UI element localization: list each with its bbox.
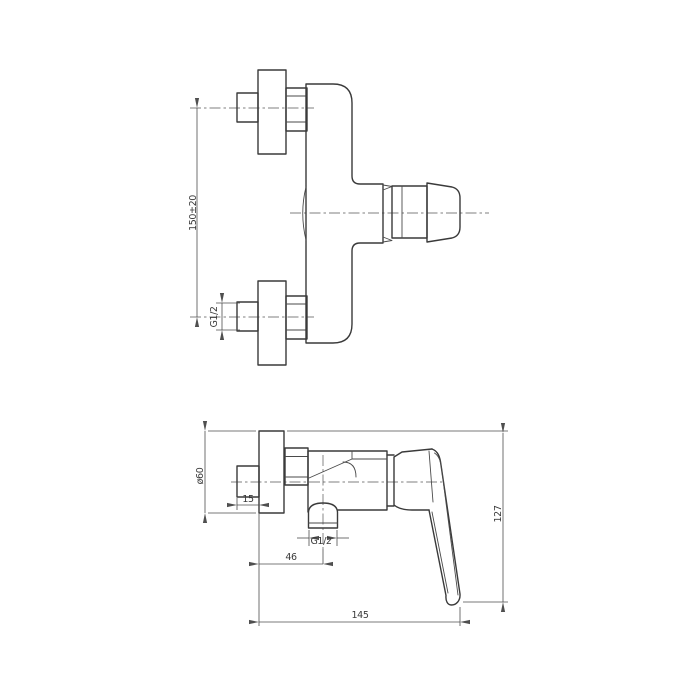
front-cartridge-ring bbox=[392, 186, 427, 238]
side-height-extension-lines bbox=[287, 431, 508, 602]
side-eccentric-depth-label: 15 bbox=[242, 494, 254, 505]
side-handle-lever-highlights bbox=[432, 453, 458, 595]
side-view: ø60 15 G1/2 46 127 145 bbox=[195, 431, 508, 626]
front-top-eccentric-connector bbox=[237, 93, 258, 122]
side-overall-depth-label: 145 bbox=[352, 610, 369, 621]
side-handle-cap-edge bbox=[429, 451, 433, 502]
front-handle-cap bbox=[427, 183, 460, 242]
front-inlet-thread-label: G1/2 bbox=[209, 306, 220, 327]
front-body-outline bbox=[306, 84, 383, 343]
front-top-hex-nut bbox=[286, 88, 307, 131]
technical-drawing-canvas: 150±20 G1/2 ø60 15 bbox=[0, 0, 700, 700]
side-body-interior-edges bbox=[309, 451, 387, 478]
side-eccentric-connector bbox=[237, 466, 259, 497]
front-top-hex-nut-facets bbox=[286, 96, 307, 122]
side-handle-lever-outline bbox=[429, 449, 460, 605]
side-wall-to-outlet-label: 46 bbox=[285, 552, 297, 563]
side-escutcheon-diameter-label: ø60 bbox=[195, 467, 206, 484]
side-overall-height-label: 127 bbox=[493, 505, 504, 522]
side-escutcheon bbox=[259, 431, 284, 513]
side-outlet-thread-label: G1/2 bbox=[310, 536, 331, 547]
front-bottom-escutcheon bbox=[258, 281, 286, 365]
front-bottom-eccentric-connector bbox=[237, 302, 258, 331]
side-hex-nut bbox=[285, 448, 308, 485]
front-cartridge-seam-marks bbox=[383, 185, 392, 242]
front-bottom-hex-nut bbox=[286, 296, 307, 339]
front-view: 150±20 G1/2 bbox=[188, 70, 489, 365]
side-hex-nut-facets bbox=[285, 457, 308, 478]
shower-mixer-drawing: 150±20 G1/2 ø60 15 bbox=[0, 0, 700, 700]
front-mounting-distance-label: 150±20 bbox=[188, 195, 199, 231]
side-handle-cap bbox=[387, 449, 432, 510]
front-top-escutcheon bbox=[258, 70, 286, 154]
